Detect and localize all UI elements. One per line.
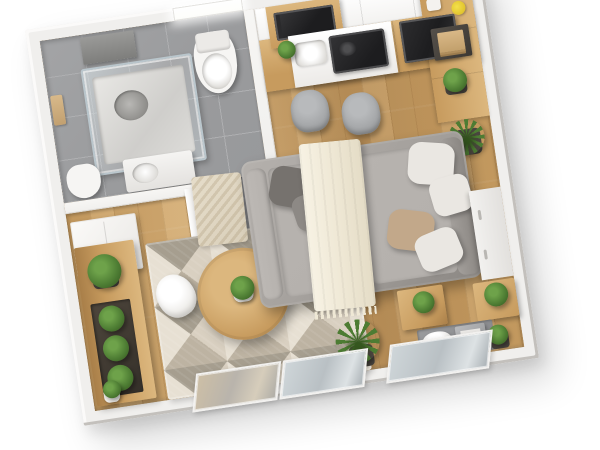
apartment [25,0,539,426]
book-tray [430,24,472,61]
vanity-basin [131,161,160,185]
book-stack [437,29,466,53]
corner-sofa [240,130,483,309]
balcony-glass-panel-3 [386,329,493,383]
shower-tray [92,64,196,165]
wood-floor [40,0,525,411]
floorplan-render [0,0,600,450]
toilet-seat [200,51,235,91]
toilet [190,29,241,97]
kitchen-sink [293,39,328,67]
shower-drain [112,88,150,123]
accent-rug [191,172,249,247]
bathroom-shelf [80,30,137,65]
bar-stool-1 [288,87,332,134]
bar-stool-2 [339,90,383,137]
toilet-tank [194,29,231,54]
towels [50,94,66,125]
